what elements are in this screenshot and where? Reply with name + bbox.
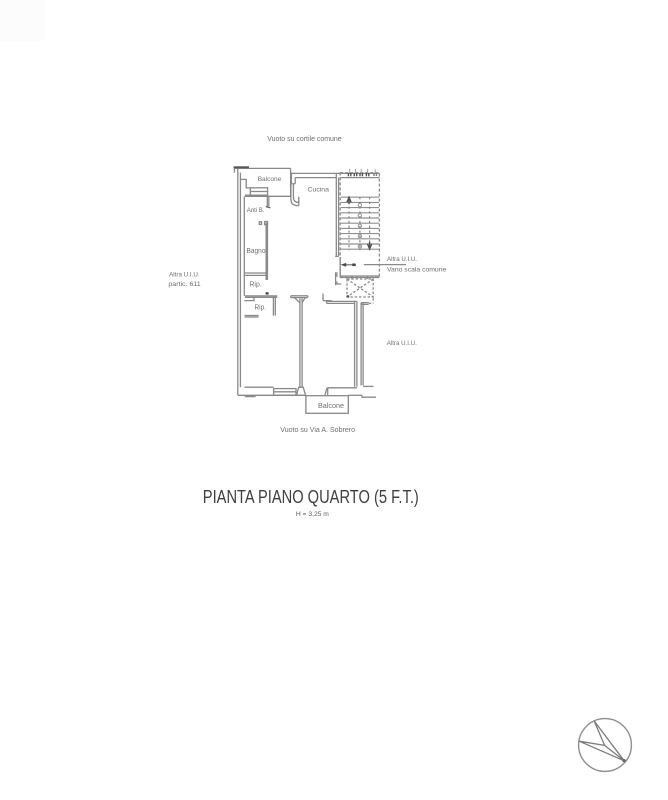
svg-text:Vuoto su Via A. Sobrero: Vuoto su Via A. Sobrero (280, 427, 355, 434)
svg-text:Balcone: Balcone (258, 176, 282, 183)
svg-text:Altra U.I.U.: Altra U.I.U. (387, 340, 417, 347)
svg-text:PIANTA PIANO QUARTO (5 F.T.): PIANTA PIANO QUARTO (5 F.T.) (203, 487, 419, 507)
svg-text:Anti B.: Anti B. (247, 207, 265, 214)
svg-text:Balcone: Balcone (318, 403, 344, 410)
svg-text:Vuoto su cortile comune: Vuoto su cortile comune (267, 136, 342, 143)
svg-text:Rip.: Rip. (249, 282, 261, 289)
svg-text:Bagno: Bagno (247, 248, 266, 255)
svg-text:Altra U.I.U.: Altra U.I.U. (387, 256, 417, 263)
svg-text:Vano scala comune: Vano scala comune (387, 267, 447, 274)
svg-text:Altra U.I.U.: Altra U.I.U. (169, 272, 200, 279)
svg-text:partic. 611: partic. 611 (168, 281, 201, 288)
svg-text:Cucina: Cucina (308, 187, 330, 194)
svg-text:Rip.: Rip. (255, 304, 267, 311)
svg-text:H = 3,25 m: H = 3,25 m (296, 511, 329, 518)
